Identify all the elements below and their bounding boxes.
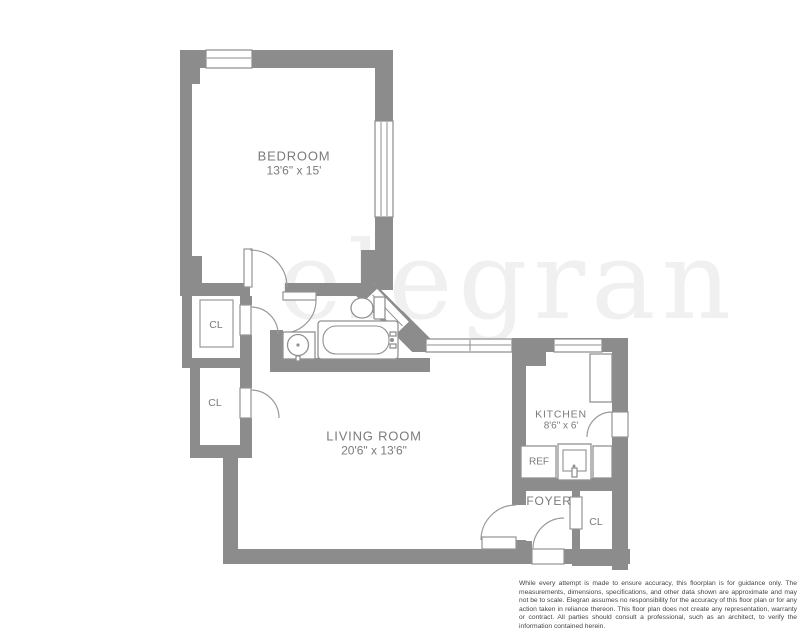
closet-3-label: CL bbox=[589, 516, 602, 528]
bathroom-sink bbox=[283, 332, 315, 361]
floorplan-drawing bbox=[0, 0, 800, 640]
living-room-name: LIVING ROOM bbox=[326, 429, 421, 444]
bedroom-name: BEDROOM bbox=[258, 149, 331, 164]
kitchen-counter bbox=[590, 354, 612, 402]
door-bedroom bbox=[244, 249, 287, 287]
door-foyer-living bbox=[481, 505, 516, 549]
bathtub bbox=[318, 321, 398, 359]
toilet bbox=[351, 297, 385, 319]
floorplan-page: elegran bbox=[0, 0, 800, 640]
living-room-label: LIVING ROOM 20'6" x 13'6" bbox=[326, 429, 421, 458]
door-bathroom bbox=[283, 292, 316, 333]
window-bedroom-top bbox=[206, 50, 252, 68]
kitchen-counter-2 bbox=[593, 446, 612, 478]
closet-1-label: CL bbox=[209, 319, 222, 331]
window-living-room bbox=[426, 339, 512, 352]
kitchen-label: KITCHEN 8'6" x 6' bbox=[535, 409, 587, 432]
window-kitchen bbox=[554, 339, 602, 352]
kitchen-dimensions: 8'6" x 6' bbox=[535, 421, 587, 432]
door-kitchen bbox=[587, 412, 628, 437]
window-bedroom-right bbox=[375, 121, 393, 217]
door-entry bbox=[532, 518, 564, 564]
closet-2-label: CL bbox=[208, 397, 221, 409]
bedroom-dimensions: 13'6" x 15' bbox=[258, 164, 331, 178]
refrigerator-label: REF bbox=[529, 457, 549, 468]
living-room-dimensions: 20'6" x 13'6" bbox=[326, 444, 421, 458]
door-closet-2 bbox=[240, 388, 279, 418]
bedroom-label: BEDROOM 13'6" x 15' bbox=[258, 149, 331, 178]
kitchen-sink bbox=[558, 444, 591, 480]
kitchen-name: KITCHEN bbox=[535, 409, 587, 421]
foyer-label: FOYER bbox=[526, 494, 571, 508]
disclaimer-text: While every attempt is made to ensure ac… bbox=[519, 580, 797, 631]
opening-foyer-closet bbox=[570, 497, 582, 529]
